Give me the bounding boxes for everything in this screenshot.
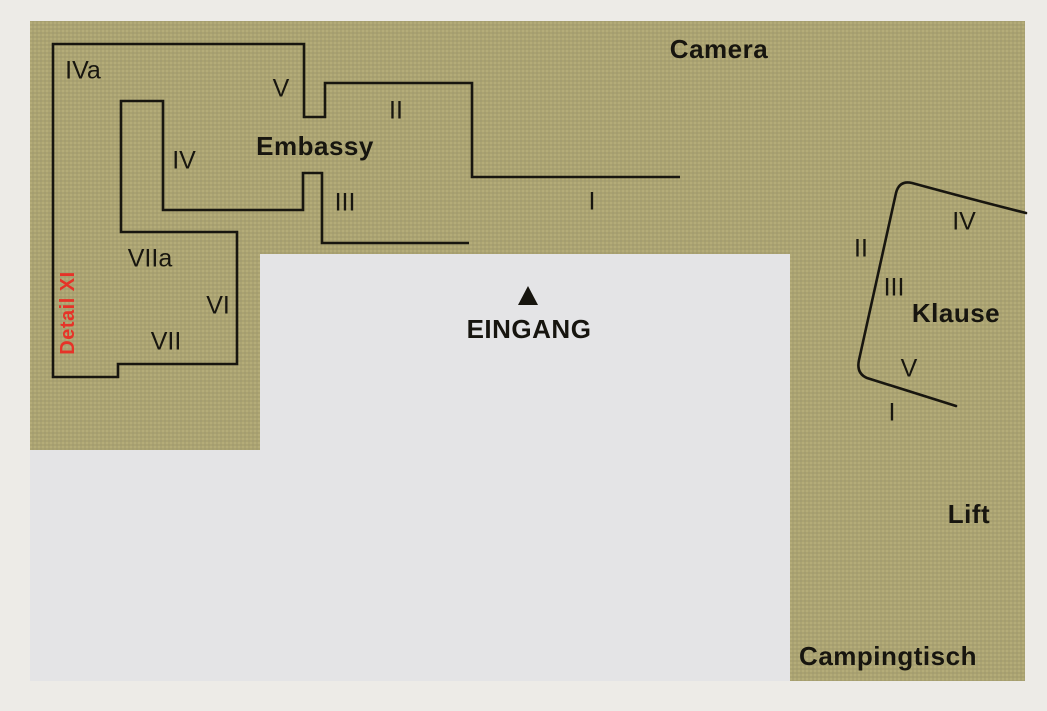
map-canvas: CameraIVaVIIEmbassyIVIIIIVIIaVIVIIDetail… xyxy=(0,0,1047,711)
map-svg xyxy=(0,0,1047,711)
